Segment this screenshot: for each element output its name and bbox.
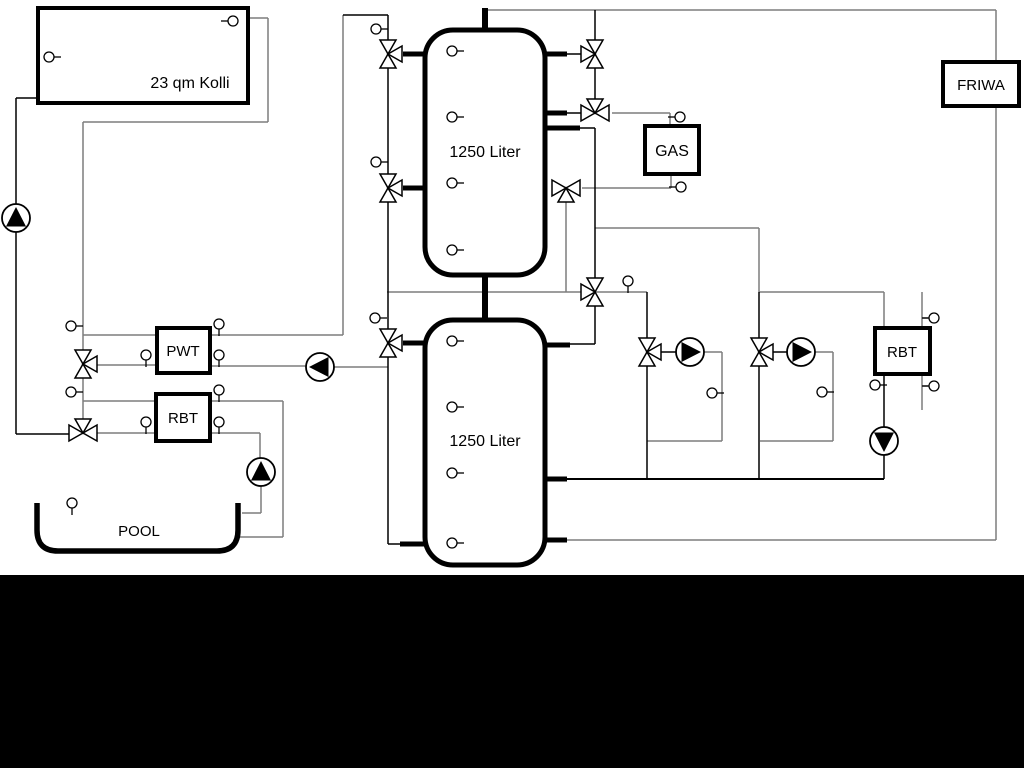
pwt-label: PWT bbox=[166, 343, 199, 360]
pump-rbt-right bbox=[870, 427, 898, 455]
bottom-black-band bbox=[0, 575, 1024, 768]
pump-solar bbox=[2, 204, 30, 232]
gas-boiler: GAS bbox=[645, 126, 699, 174]
solar-collector: 23 qm Kolli bbox=[38, 8, 248, 103]
rbt-right-label: RBT bbox=[887, 344, 917, 361]
buffer-tank-lower-label: 1250 Liter bbox=[449, 433, 521, 450]
schematic-canvas: 23 qm Kolli 1250 Liter 1250 Liter PWT RB… bbox=[0, 0, 1024, 768]
pump-heating-circuit-b bbox=[787, 338, 815, 366]
buffer-tank-upper: 1250 Liter bbox=[425, 30, 545, 275]
gas-boiler-label: GAS bbox=[655, 143, 689, 160]
pump-heating-circuit-a bbox=[676, 338, 704, 366]
pump-pool bbox=[247, 458, 275, 486]
rbt-right-heat-exchanger: RBT bbox=[875, 328, 930, 374]
pump-pwt-secondary bbox=[306, 353, 334, 381]
buffer-tank-lower: 1250 Liter bbox=[425, 320, 545, 565]
pwt-heat-exchanger: PWT bbox=[157, 328, 210, 373]
friwa-station: FRIWA bbox=[943, 62, 1019, 106]
hydraulic-diagram: 23 qm Kolli 1250 Liter 1250 Liter PWT RB… bbox=[0, 0, 1024, 768]
rbt-left-heat-exchanger: RBT bbox=[156, 394, 210, 441]
solar-collector-label: 23 qm Kolli bbox=[150, 75, 229, 92]
pool-label: POOL bbox=[118, 523, 160, 540]
rbt-left-label: RBT bbox=[168, 410, 198, 427]
friwa-label: FRIWA bbox=[957, 77, 1005, 94]
buffer-tank-upper-label: 1250 Liter bbox=[449, 144, 521, 161]
